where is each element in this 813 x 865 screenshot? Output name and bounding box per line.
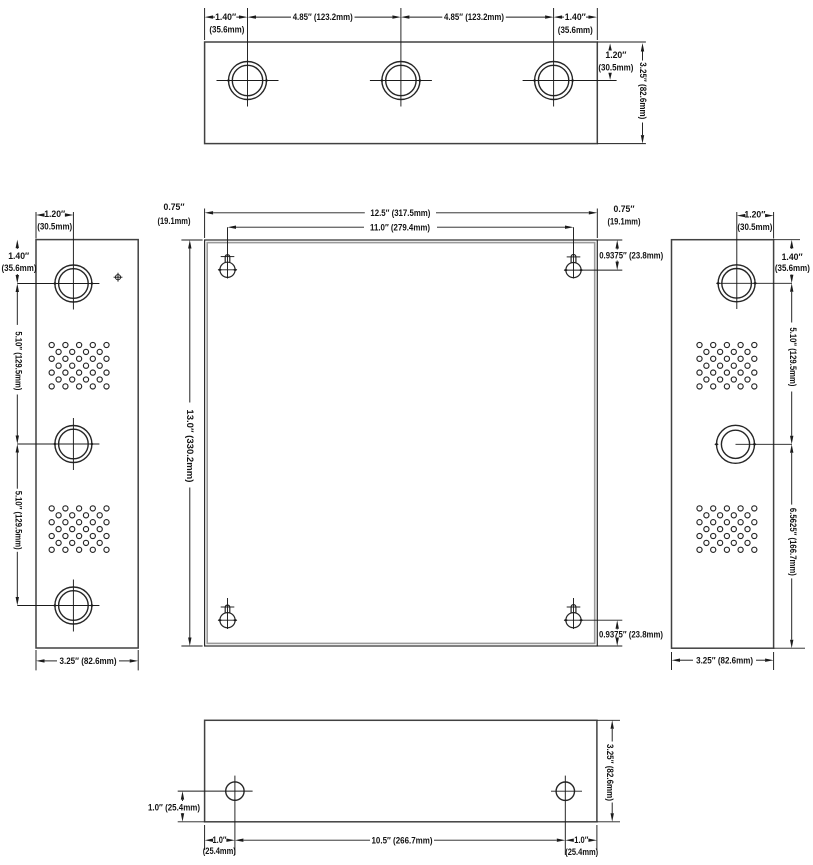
svg-text:5.10″ (129.5mm): 5.10″ (129.5mm) xyxy=(787,327,798,386)
svg-text:(25.4mm): (25.4mm) xyxy=(565,847,598,858)
svg-text:(30.5mm): (30.5mm) xyxy=(598,63,633,74)
svg-text:13.0″ (330.2mm): 13.0″ (330.2mm) xyxy=(184,409,195,482)
svg-text:1.40″: 1.40″ xyxy=(8,251,29,262)
svg-text:1.20″: 1.20″ xyxy=(44,209,65,220)
svg-text:(30.5mm): (30.5mm) xyxy=(37,222,72,233)
svg-text:4.85″ (123.2mm): 4.85″ (123.2mm) xyxy=(444,12,504,23)
svg-text:(35.6mm): (35.6mm) xyxy=(2,263,37,274)
svg-text:0.75″: 0.75″ xyxy=(164,202,185,213)
svg-text:1.0″: 1.0″ xyxy=(574,835,588,846)
svg-text:3.25″ (82.6mm): 3.25″ (82.6mm) xyxy=(604,744,615,801)
svg-text:1.20″: 1.20″ xyxy=(744,210,765,221)
svg-text:0.9375″ (23.8mm): 0.9375″ (23.8mm) xyxy=(599,630,663,641)
svg-text:(19.1mm): (19.1mm) xyxy=(608,217,641,228)
svg-text:1.20″: 1.20″ xyxy=(605,50,626,61)
svg-text:1.40″: 1.40″ xyxy=(782,252,803,263)
svg-text:(25.4mm): (25.4mm) xyxy=(203,846,236,857)
svg-text:0.9375″ (23.8mm): 0.9375″ (23.8mm) xyxy=(599,251,663,262)
svg-text:0.75″: 0.75″ xyxy=(614,204,635,215)
svg-text:1.0″ (25.4mm): 1.0″ (25.4mm) xyxy=(148,802,200,813)
svg-text:5.10″ (129.5mm): 5.10″ (129.5mm) xyxy=(13,491,24,550)
svg-text:1.40″: 1.40″ xyxy=(215,12,236,23)
svg-text:(35.6mm): (35.6mm) xyxy=(775,263,810,274)
svg-text:(35.6mm): (35.6mm) xyxy=(558,25,593,36)
svg-text:3.25″ (82.6mm): 3.25″ (82.6mm) xyxy=(60,656,117,667)
svg-text:1.0″: 1.0″ xyxy=(213,835,227,846)
svg-text:6.5625″ (166.7mm): 6.5625″ (166.7mm) xyxy=(787,508,798,576)
svg-text:3.25″ (82.6mm): 3.25″ (82.6mm) xyxy=(637,62,648,119)
svg-text:(19.1mm): (19.1mm) xyxy=(158,216,191,227)
svg-text:5.10″ (129.5mm): 5.10″ (129.5mm) xyxy=(13,331,24,390)
svg-text:(35.6mm): (35.6mm) xyxy=(209,24,244,35)
svg-text:1.40″: 1.40″ xyxy=(565,12,586,23)
svg-text:3.25″ (82.6mm): 3.25″ (82.6mm) xyxy=(696,656,753,667)
svg-text:12.5″ (317.5mm): 12.5″ (317.5mm) xyxy=(370,208,430,219)
svg-text:(30.5mm): (30.5mm) xyxy=(737,222,772,233)
svg-text:4.85″ (123.2mm): 4.85″ (123.2mm) xyxy=(293,12,353,23)
svg-text:11.0″ (279.4mm): 11.0″ (279.4mm) xyxy=(370,223,430,234)
svg-text:10.5″ (266.7mm): 10.5″ (266.7mm) xyxy=(372,835,433,846)
